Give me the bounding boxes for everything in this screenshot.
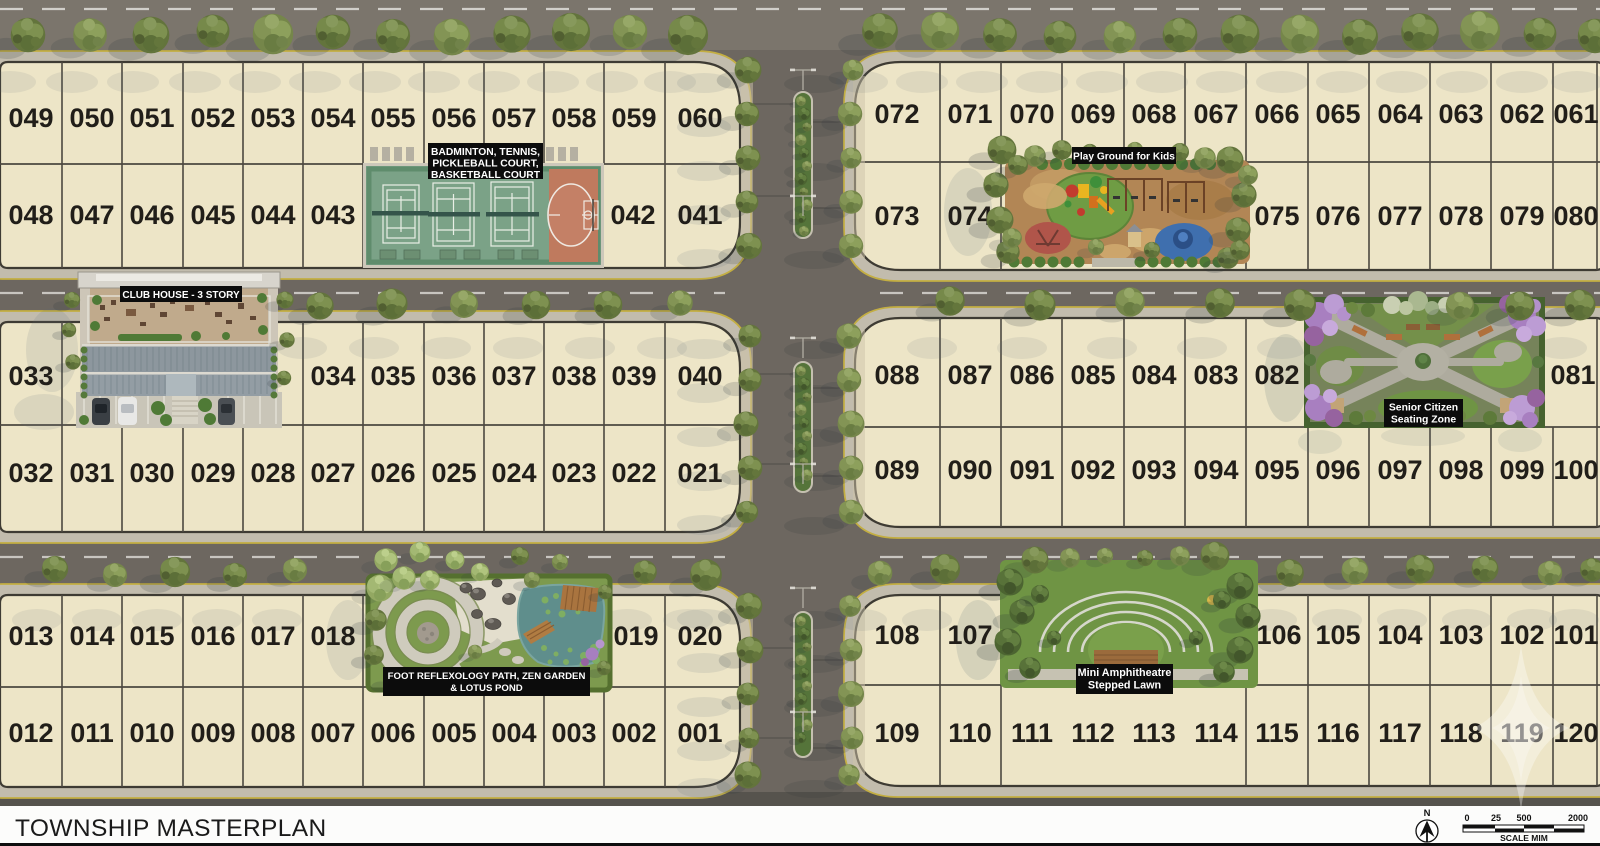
svg-text:079: 079 xyxy=(1499,201,1544,231)
svg-text:019: 019 xyxy=(613,621,658,651)
svg-text:010: 010 xyxy=(129,718,174,748)
svg-text:080: 080 xyxy=(1553,201,1598,231)
svg-text:106: 106 xyxy=(1256,620,1301,650)
svg-text:070: 070 xyxy=(1009,99,1054,129)
svg-text:Stepped Lawn: Stepped Lawn xyxy=(1088,680,1161,692)
svg-text:051: 051 xyxy=(129,103,174,133)
svg-text:120: 120 xyxy=(1553,718,1598,748)
svg-text:021: 021 xyxy=(677,458,722,488)
svg-text:022: 022 xyxy=(611,458,656,488)
svg-text:009: 009 xyxy=(190,718,235,748)
svg-text:006: 006 xyxy=(370,718,415,748)
svg-text:044: 044 xyxy=(250,200,295,230)
svg-text:BASKETBALL COURT: BASKETBALL COURT xyxy=(431,170,541,181)
svg-text:008: 008 xyxy=(250,718,295,748)
svg-text:046: 046 xyxy=(129,200,174,230)
svg-text:Play Ground for Kids: Play Ground for Kids xyxy=(1073,152,1175,163)
svg-text:014: 014 xyxy=(69,621,114,651)
svg-text:067: 067 xyxy=(1193,99,1238,129)
svg-text:Mini Amphitheatre: Mini Amphitheatre xyxy=(1078,667,1172,679)
svg-text:101: 101 xyxy=(1553,620,1598,650)
svg-text:031: 031 xyxy=(69,458,114,488)
svg-text:088: 088 xyxy=(874,360,919,390)
svg-text:057: 057 xyxy=(491,103,536,133)
svg-text:087: 087 xyxy=(947,360,992,390)
svg-text:111: 111 xyxy=(1011,718,1053,748)
svg-text:089: 089 xyxy=(874,455,919,485)
svg-text:061: 061 xyxy=(1553,99,1598,129)
svg-text:114: 114 xyxy=(1194,718,1238,748)
svg-text:039: 039 xyxy=(611,361,656,391)
svg-text:034: 034 xyxy=(310,361,355,391)
svg-text:096: 096 xyxy=(1315,455,1360,485)
svg-text:095: 095 xyxy=(1254,455,1299,485)
svg-text:043: 043 xyxy=(310,200,355,230)
svg-text:004: 004 xyxy=(491,718,536,748)
svg-text:024: 024 xyxy=(491,458,536,488)
svg-text:013: 013 xyxy=(8,621,53,651)
svg-text:084: 084 xyxy=(1131,360,1176,390)
svg-text:017: 017 xyxy=(250,621,295,651)
svg-text:093: 093 xyxy=(1131,455,1176,485)
svg-text:012: 012 xyxy=(8,718,53,748)
svg-text:038: 038 xyxy=(551,361,596,391)
svg-text:068: 068 xyxy=(1131,99,1176,129)
svg-text:056: 056 xyxy=(431,103,476,133)
svg-text:25: 25 xyxy=(1491,813,1501,823)
svg-text:090: 090 xyxy=(947,455,992,485)
svg-text:Seating Zone: Seating Zone xyxy=(1391,415,1456,426)
svg-text:028: 028 xyxy=(250,458,295,488)
svg-text:058: 058 xyxy=(551,103,596,133)
svg-text:098: 098 xyxy=(1438,455,1483,485)
svg-text:0: 0 xyxy=(1464,813,1469,823)
svg-text:BADMINTON, TENNIS,: BADMINTON, TENNIS, xyxy=(431,147,540,158)
svg-text:102: 102 xyxy=(1499,620,1544,650)
svg-text:055: 055 xyxy=(370,103,415,133)
svg-text:052: 052 xyxy=(190,103,235,133)
svg-text:064: 064 xyxy=(1377,99,1422,129)
svg-text:082: 082 xyxy=(1254,360,1299,390)
svg-text:115: 115 xyxy=(1255,718,1299,748)
svg-text:078: 078 xyxy=(1438,201,1483,231)
svg-text:108: 108 xyxy=(874,620,919,650)
svg-text:071: 071 xyxy=(947,99,992,129)
svg-text:Senior Citizen: Senior Citizen xyxy=(1389,403,1458,414)
svg-text:049: 049 xyxy=(8,103,53,133)
svg-text:092: 092 xyxy=(1070,455,1115,485)
svg-text:025: 025 xyxy=(431,458,476,488)
svg-text:001: 001 xyxy=(677,718,722,748)
svg-text:065: 065 xyxy=(1315,99,1360,129)
svg-text:047: 047 xyxy=(69,200,114,230)
svg-text:018: 018 xyxy=(310,621,355,651)
svg-text:099: 099 xyxy=(1499,455,1544,485)
svg-text:023: 023 xyxy=(551,458,596,488)
svg-text:059: 059 xyxy=(611,103,656,133)
svg-text:060: 060 xyxy=(677,103,722,133)
svg-text:SCALE MIM: SCALE MIM xyxy=(1500,833,1548,843)
svg-text:CLUB HOUSE - 3 STORY: CLUB HOUSE - 3 STORY xyxy=(122,290,240,301)
svg-text:026: 026 xyxy=(370,458,415,488)
svg-text:016: 016 xyxy=(190,621,235,651)
svg-text:033: 033 xyxy=(8,361,53,391)
svg-text:048: 048 xyxy=(8,200,53,230)
svg-text:011: 011 xyxy=(70,718,114,748)
svg-text:104: 104 xyxy=(1377,620,1422,650)
svg-text:112: 112 xyxy=(1071,718,1115,748)
svg-text:077: 077 xyxy=(1377,201,1422,231)
svg-text:032: 032 xyxy=(8,458,53,488)
svg-text:094: 094 xyxy=(1193,455,1238,485)
svg-text:103: 103 xyxy=(1438,620,1483,650)
svg-text:116: 116 xyxy=(1316,718,1360,748)
svg-text:036: 036 xyxy=(431,361,476,391)
svg-text:042: 042 xyxy=(610,200,655,230)
svg-text:083: 083 xyxy=(1193,360,1238,390)
svg-text:075: 075 xyxy=(1254,201,1299,231)
svg-text:005: 005 xyxy=(431,718,476,748)
svg-text:097: 097 xyxy=(1377,455,1422,485)
svg-text:086: 086 xyxy=(1009,360,1054,390)
svg-text:076: 076 xyxy=(1315,201,1360,231)
svg-text:073: 073 xyxy=(874,201,919,231)
svg-text:500: 500 xyxy=(1516,813,1531,823)
svg-text:063: 063 xyxy=(1438,99,1483,129)
svg-text:040: 040 xyxy=(677,361,722,391)
svg-text:027: 027 xyxy=(310,458,355,488)
svg-text:035: 035 xyxy=(370,361,415,391)
svg-text:007: 007 xyxy=(310,718,355,748)
svg-text:2000: 2000 xyxy=(1568,813,1588,823)
svg-text:002: 002 xyxy=(611,718,656,748)
svg-text:020: 020 xyxy=(677,621,722,651)
svg-text:085: 085 xyxy=(1070,360,1115,390)
svg-text:053: 053 xyxy=(250,103,295,133)
svg-text:117: 117 xyxy=(1378,718,1422,748)
svg-text:091: 091 xyxy=(1009,455,1054,485)
svg-text:041: 041 xyxy=(677,200,722,230)
svg-text:110: 110 xyxy=(948,718,992,748)
svg-text:113: 113 xyxy=(1132,718,1176,748)
svg-text:003: 003 xyxy=(551,718,596,748)
svg-text:069: 069 xyxy=(1070,99,1115,129)
svg-text:062: 062 xyxy=(1499,99,1544,129)
svg-text:081: 081 xyxy=(1550,360,1595,390)
svg-text:072: 072 xyxy=(874,99,919,129)
svg-text:PICKLEBALL COURT,: PICKLEBALL COURT, xyxy=(432,159,538,170)
svg-text:105: 105 xyxy=(1315,620,1360,650)
svg-text:TOWNSHIP MASTERPLAN: TOWNSHIP MASTERPLAN xyxy=(15,815,327,842)
svg-text:118: 118 xyxy=(1439,718,1483,748)
svg-text:050: 050 xyxy=(69,103,114,133)
svg-text:045: 045 xyxy=(190,200,235,230)
svg-text:100: 100 xyxy=(1553,455,1598,485)
svg-text:037: 037 xyxy=(491,361,536,391)
svg-text:030: 030 xyxy=(129,458,174,488)
svg-text:029: 029 xyxy=(190,458,235,488)
svg-text:FOOT REFLEXOLOGY PATH, ZEN GAR: FOOT REFLEXOLOGY PATH, ZEN GARDEN xyxy=(388,671,586,682)
svg-text:109: 109 xyxy=(874,718,919,748)
svg-text:054: 054 xyxy=(310,103,355,133)
svg-text:& LOTUS POND: & LOTUS POND xyxy=(450,683,523,694)
svg-text:066: 066 xyxy=(1254,99,1299,129)
svg-text:015: 015 xyxy=(129,621,174,651)
svg-text:N: N xyxy=(1424,808,1431,819)
